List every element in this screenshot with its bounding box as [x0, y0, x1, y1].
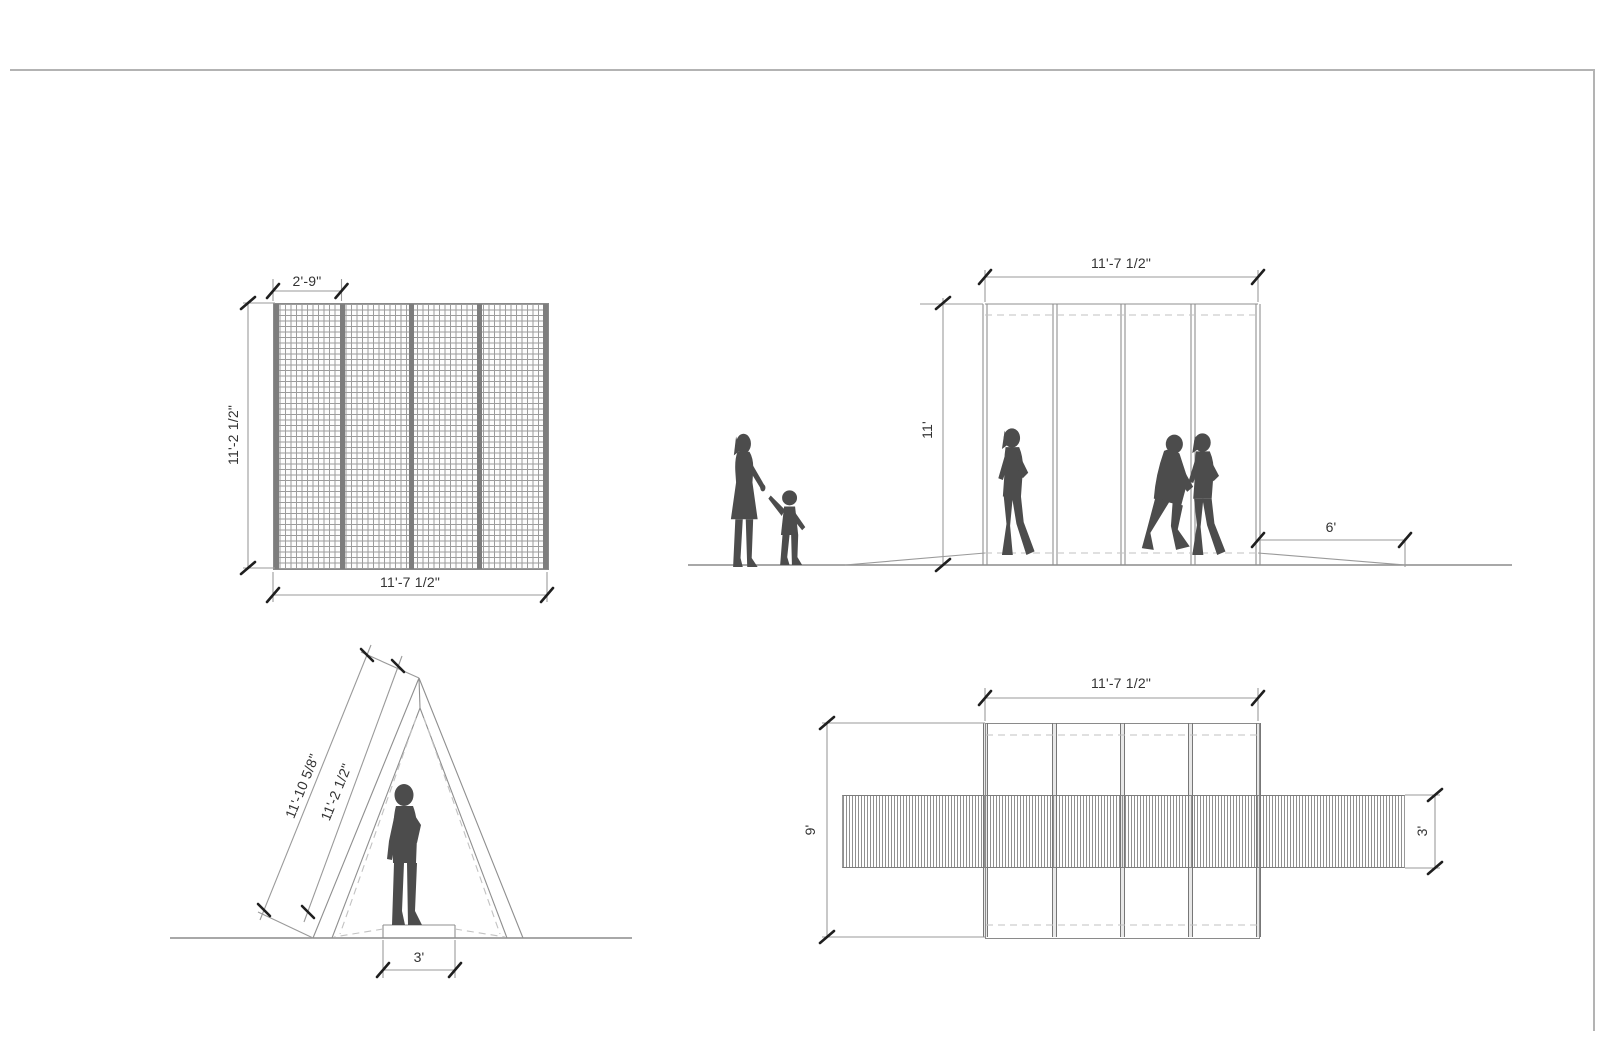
dimension-lines [820, 688, 1442, 943]
dimension-lines [241, 279, 553, 602]
side-elevation-view: 11'-7 1/2" 11' 6' [680, 240, 1520, 580]
sheet-border-top [10, 69, 1595, 71]
structure-lines [688, 304, 1512, 565]
section-view: 11'-10 5/8" 11'-2 1/2" 3' [170, 620, 640, 1020]
plan-linework [790, 660, 1470, 960]
walking-woman-silhouette [982, 427, 1040, 555]
standing-man-silhouette [376, 783, 432, 925]
plan-view: 11'-7 1/2" 9' 3' [790, 660, 1470, 960]
sheet-border-right [1593, 69, 1595, 1031]
walking-woman-silhouette [1172, 432, 1231, 555]
front-elevation-linework [230, 250, 570, 610]
child-silhouette [766, 486, 810, 565]
front-elevation-view: 2'-9" 11'-2 1/2" 11'-7 1/2" [230, 250, 570, 610]
structure-lines [986, 735, 1257, 925]
drawing-sheet: 2'-9" 11'-2 1/2" 11'-7 1/2" [0, 0, 1612, 1043]
